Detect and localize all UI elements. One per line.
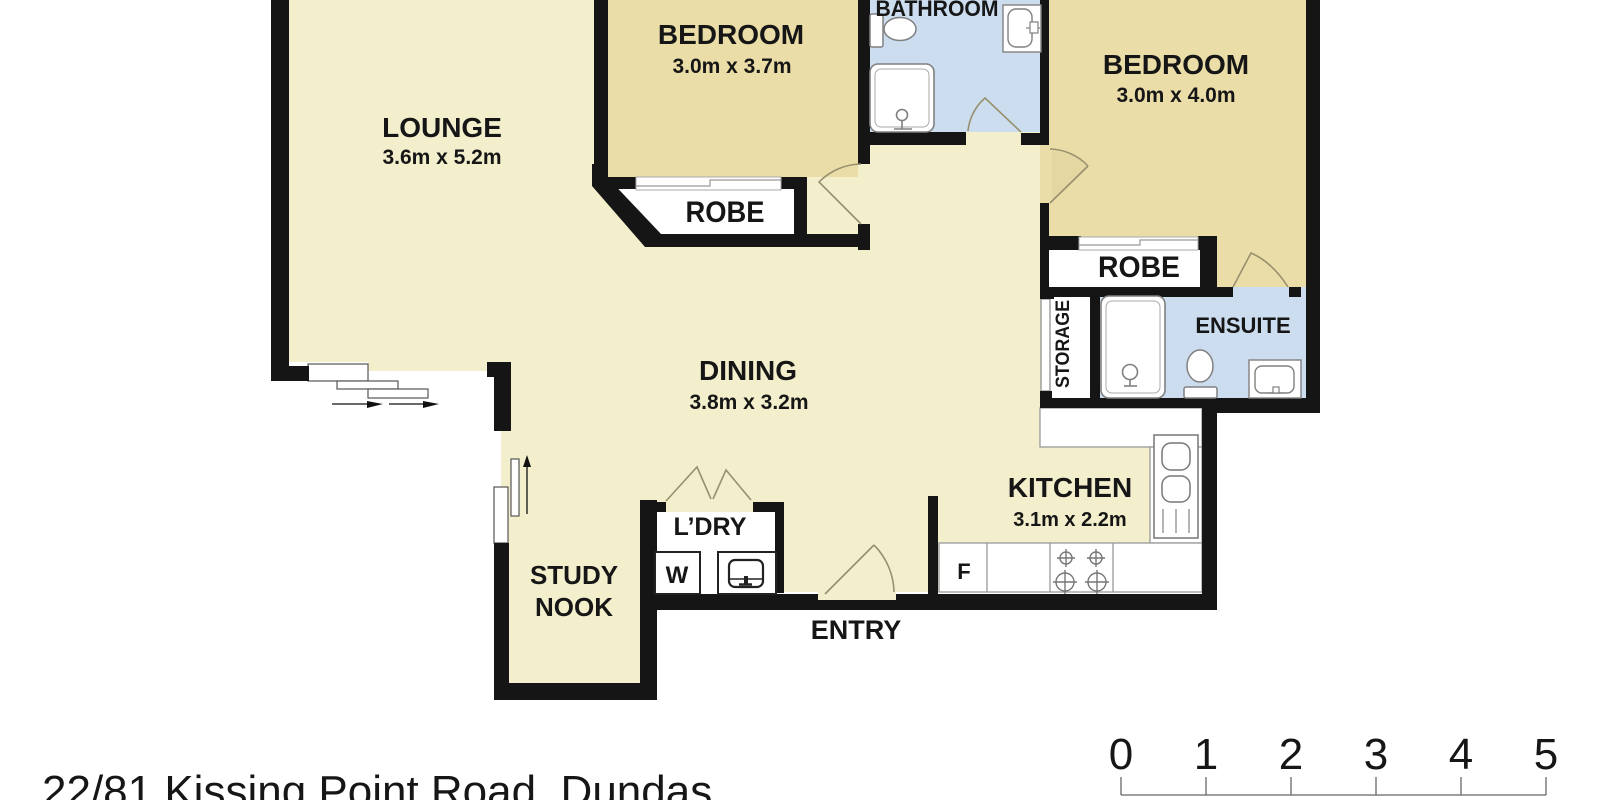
svg-text:3: 3 <box>1364 730 1388 779</box>
svg-text:3.8m x 3.2m: 3.8m x 3.2m <box>689 391 808 414</box>
svg-text:4: 4 <box>1449 730 1473 779</box>
svg-text:22/81 Kissing Point Road, Dund: 22/81 Kissing Point Road, Dundas <box>42 767 712 800</box>
svg-text:DINING: DINING <box>699 355 797 386</box>
svg-text:0: 0 <box>1109 730 1133 779</box>
svg-text:2: 2 <box>1279 730 1303 779</box>
svg-text:ENTRY: ENTRY <box>811 615 902 645</box>
svg-text:ROBE: ROBE <box>1098 251 1180 284</box>
svg-text:W: W <box>666 562 689 589</box>
svg-text:3.1m x 2.2m: 3.1m x 2.2m <box>1013 509 1126 531</box>
svg-text:3.0m x 3.7m: 3.0m x 3.7m <box>672 55 791 78</box>
svg-text:3.6m x 5.2m: 3.6m x 5.2m <box>382 146 501 169</box>
svg-text:KITCHEN: KITCHEN <box>1008 472 1132 503</box>
svg-text:ROBE: ROBE <box>686 196 765 229</box>
svg-text:NOOK: NOOK <box>535 592 613 622</box>
svg-text:1: 1 <box>1194 730 1218 779</box>
svg-text:L’DRY: L’DRY <box>674 513 747 541</box>
svg-text:5: 5 <box>1534 730 1558 779</box>
svg-text:BEDROOM: BEDROOM <box>1103 49 1249 80</box>
svg-text:STUDY: STUDY <box>530 560 618 590</box>
svg-text:F: F <box>957 559 970 584</box>
svg-text:3.0m x 4.0m: 3.0m x 4.0m <box>1116 84 1235 107</box>
svg-text:STORAGE: STORAGE <box>1053 300 1074 388</box>
svg-text:ENSUITE: ENSUITE <box>1195 313 1290 338</box>
svg-text:BEDROOM: BEDROOM <box>658 19 804 50</box>
svg-text:LOUNGE: LOUNGE <box>382 112 502 143</box>
svg-text:BATHROOM: BATHROOM <box>876 0 999 21</box>
